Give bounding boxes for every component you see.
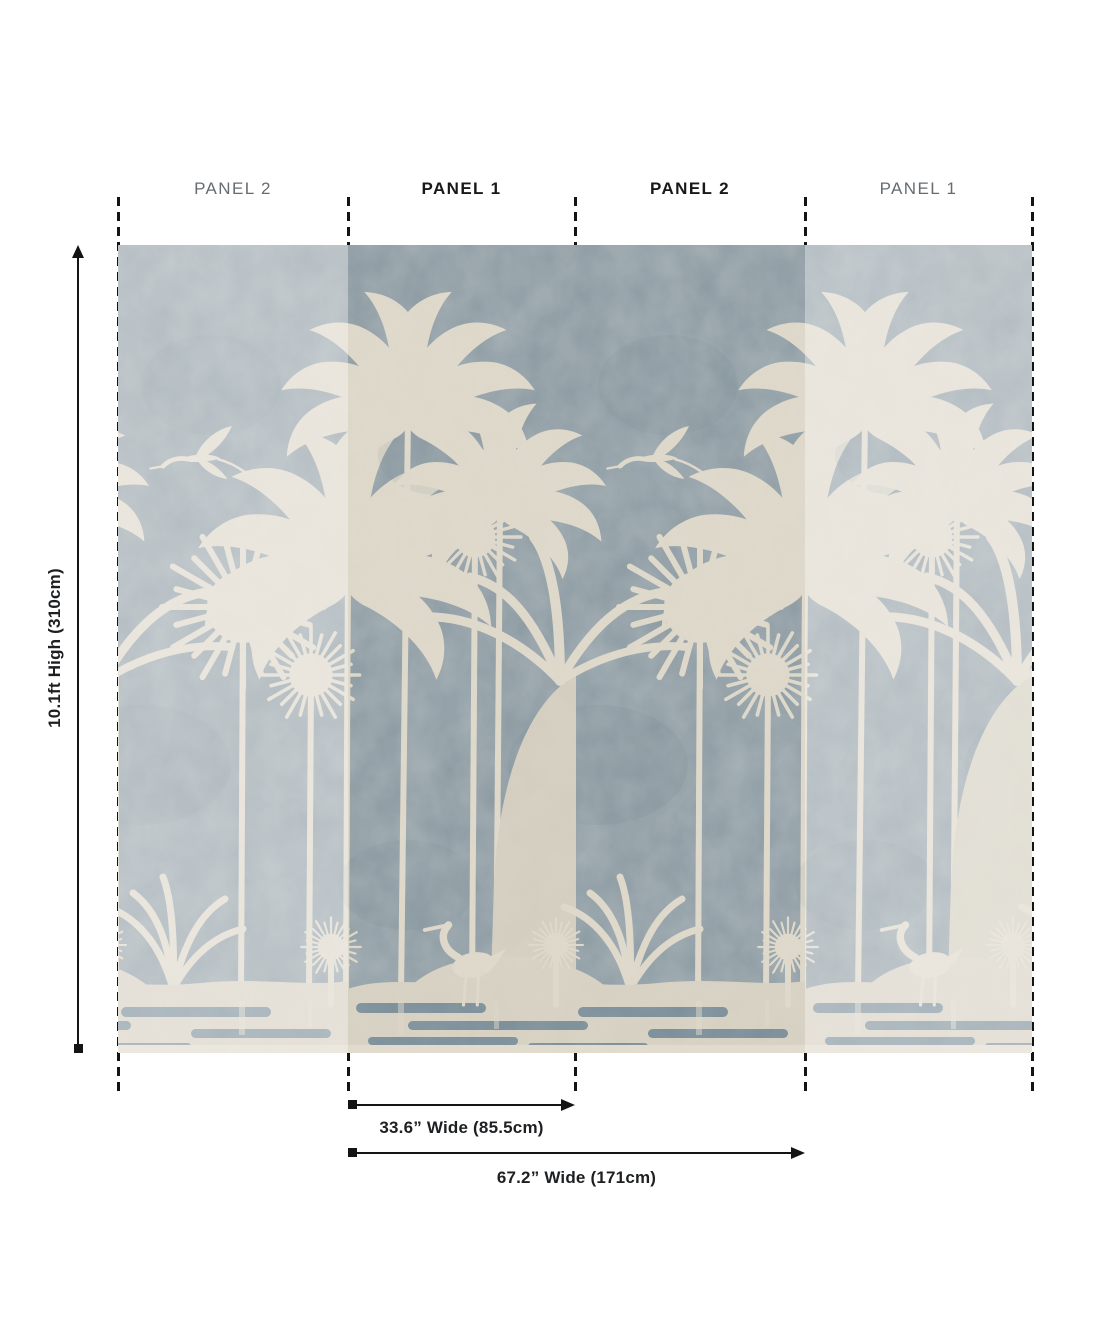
faded-panel-overlay-left bbox=[118, 245, 348, 1053]
palm-heron-mural bbox=[118, 245, 1032, 1053]
panel-label-2: PANEL 1 bbox=[348, 179, 575, 199]
total-width-dimension-label: 67.2” Wide (171cm) bbox=[348, 1168, 805, 1188]
total-width-dimension-line bbox=[353, 1152, 792, 1154]
panel-width-arrow-right-icon bbox=[561, 1099, 575, 1111]
panel-width-dimension-label: 33.6” Wide (85.5cm) bbox=[348, 1118, 575, 1138]
panel-width-dimension-line bbox=[353, 1104, 563, 1106]
height-dimension-end-square bbox=[74, 1044, 83, 1053]
total-width-arrow-right-icon bbox=[791, 1147, 805, 1159]
panel-label-1: PANEL 2 bbox=[118, 179, 348, 199]
height-dimension-line bbox=[77, 257, 79, 1047]
wallpaper-panel-diagram: PANEL 2 PANEL 1 PANEL 2 PANEL 1 bbox=[0, 0, 1100, 1320]
panel-label-3: PANEL 2 bbox=[575, 179, 805, 199]
height-dimension-label: 10.1ft High (310cm) bbox=[45, 568, 65, 728]
panel-label-4: PANEL 1 bbox=[805, 179, 1032, 199]
faded-panel-overlay-right bbox=[805, 245, 1032, 1053]
mural-artwork bbox=[118, 245, 1032, 1053]
